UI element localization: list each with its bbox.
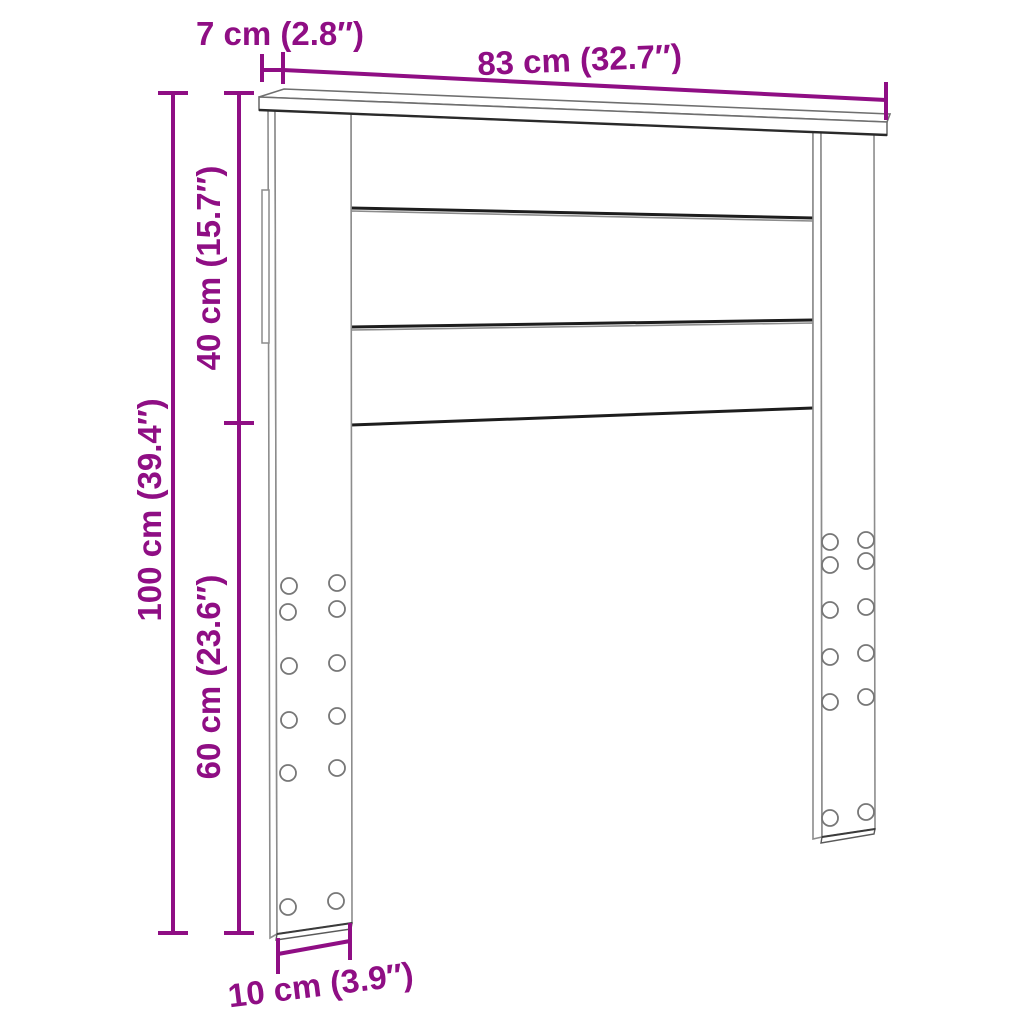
bolt-hole xyxy=(858,599,874,615)
bolt-hole xyxy=(858,689,874,705)
bolt-hole xyxy=(822,694,838,710)
bolt-hole xyxy=(822,810,838,826)
right-leg-front-face xyxy=(821,129,875,837)
headboard-dimension-diagram: 7 cm (2.8″) 83 cm (32.7″) 100 cm (39.4″)… xyxy=(0,0,1024,1024)
right-leg xyxy=(813,129,875,843)
dimension-panel-and-leg-height xyxy=(224,93,254,933)
bolt-hole xyxy=(280,765,296,781)
bolt-hole xyxy=(822,602,838,618)
dim-line xyxy=(278,941,350,954)
bolt-hole xyxy=(281,712,297,728)
bolt-hole xyxy=(329,760,345,776)
bolt-hole xyxy=(329,575,345,591)
bolt-hole xyxy=(858,532,874,548)
label-leg-height: 60 cm (23.6″) xyxy=(190,575,227,780)
bolt-hole xyxy=(329,708,345,724)
label-panel-height: 40 cm (15.7″) xyxy=(190,166,227,371)
bolt-hole xyxy=(280,604,296,620)
bolt-hole xyxy=(328,893,344,909)
bolt-hole xyxy=(822,557,838,573)
headboard-panels xyxy=(351,114,813,425)
bolt-hole xyxy=(822,534,838,550)
bolt-hole xyxy=(822,649,838,665)
bolt-hole xyxy=(858,553,874,569)
bolt-hole xyxy=(329,601,345,617)
bolt-hole xyxy=(858,645,874,661)
left-leg-front-face xyxy=(275,107,352,934)
label-total-height: 100 cm (39.4″) xyxy=(131,398,168,621)
label-depth: 7 cm (2.8″) xyxy=(196,15,364,52)
panel-middle xyxy=(351,211,813,327)
left-leg xyxy=(262,104,352,940)
bolt-hole xyxy=(281,658,297,674)
bolt-hole xyxy=(858,804,874,820)
bolt-hole xyxy=(280,899,296,915)
bolt-hole xyxy=(281,578,297,594)
label-width: 83 cm (32.7″) xyxy=(476,37,682,82)
left-leg-rail-slot xyxy=(262,190,269,343)
dimension-depth xyxy=(262,52,283,84)
bolt-hole xyxy=(329,655,345,671)
label-leg-depth: 10 cm (3.9″) xyxy=(226,955,416,1014)
